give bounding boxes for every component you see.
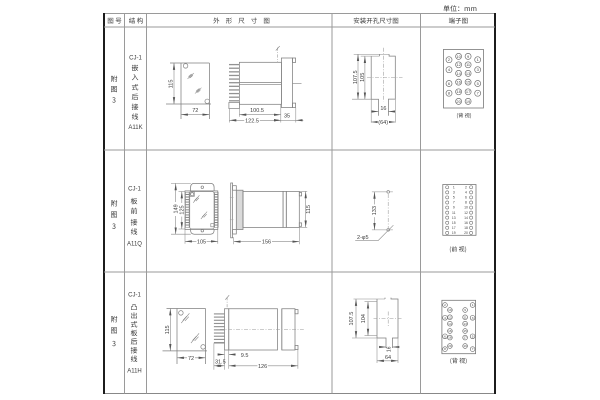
- svg-text:A11H: A11H: [127, 369, 142, 375]
- svg-text:20: 20: [464, 231, 468, 235]
- svg-text:13: 13: [466, 71, 470, 76]
- svg-text:133: 133: [372, 206, 378, 215]
- svg-text:7: 7: [453, 201, 455, 205]
- svg-text:8: 8: [448, 91, 450, 96]
- svg-text:115: 115: [165, 325, 171, 334]
- svg-text:14: 14: [464, 216, 468, 220]
- svg-text:5: 5: [472, 334, 474, 338]
- svg-text:18: 18: [448, 336, 452, 340]
- svg-text:16: 16: [456, 79, 460, 84]
- svg-text:4: 4: [444, 316, 446, 320]
- svg-text:8: 8: [465, 201, 467, 205]
- svg-text:72: 72: [188, 356, 194, 362]
- svg-text:15: 15: [466, 79, 470, 84]
- svg-text:8: 8: [444, 347, 446, 351]
- svg-text:15: 15: [463, 329, 467, 333]
- svg-text:19: 19: [466, 99, 470, 104]
- svg-text:9: 9: [464, 308, 466, 312]
- svg-text:2: 2: [465, 186, 467, 190]
- svg-text:(64): (64): [378, 120, 388, 126]
- svg-text:13: 13: [452, 216, 456, 220]
- svg-text:105: 105: [360, 73, 366, 82]
- svg-text:3: 3: [472, 316, 474, 320]
- svg-text:2: 2: [444, 303, 446, 307]
- svg-text:CJ-1: CJ-1: [128, 187, 141, 193]
- svg-text:16: 16: [464, 221, 468, 225]
- svg-text:19: 19: [452, 231, 456, 235]
- svg-text:9: 9: [453, 206, 455, 210]
- svg-text:115: 115: [169, 80, 175, 89]
- svg-text:17: 17: [452, 226, 456, 230]
- svg-text:100.5: 100.5: [250, 108, 264, 114]
- svg-text:13: 13: [463, 322, 467, 326]
- svg-text:105: 105: [197, 239, 206, 245]
- svg-text:10: 10: [464, 206, 468, 210]
- svg-text:1: 1: [477, 57, 479, 62]
- svg-text:9.5: 9.5: [241, 353, 249, 359]
- svg-text:CJ-1: CJ-1: [128, 293, 141, 299]
- svg-text:126: 126: [258, 364, 267, 370]
- svg-text:115: 115: [306, 205, 312, 214]
- svg-text:2-φ5: 2-φ5: [357, 235, 369, 241]
- svg-text:156: 156: [262, 240, 271, 246]
- svg-text:A11Q: A11Q: [127, 242, 142, 248]
- svg-text:72: 72: [192, 108, 198, 114]
- svg-text:12: 12: [448, 315, 452, 319]
- svg-text:122.5: 122.5: [245, 118, 259, 124]
- svg-text:5: 5: [477, 81, 479, 86]
- svg-text:12: 12: [464, 211, 468, 215]
- svg-text:125: 125: [179, 205, 185, 214]
- svg-text:11: 11: [452, 211, 456, 215]
- svg-text:7: 7: [477, 91, 479, 96]
- svg-text:149: 149: [173, 204, 179, 213]
- svg-text:17: 17: [466, 89, 470, 94]
- svg-text:14: 14: [448, 322, 452, 326]
- svg-text:5: 5: [453, 196, 455, 200]
- svg-text:9: 9: [467, 54, 469, 59]
- svg-text:31.5: 31.5: [215, 359, 226, 365]
- svg-text:11: 11: [466, 62, 470, 67]
- svg-text:15: 15: [452, 221, 456, 225]
- svg-text:CJ-1: CJ-1: [129, 55, 142, 61]
- svg-text:64: 64: [385, 355, 391, 361]
- svg-text:3: 3: [477, 67, 479, 72]
- svg-text:A11K: A11K: [128, 125, 142, 131]
- svg-text:16: 16: [387, 346, 393, 352]
- svg-text:6: 6: [448, 81, 450, 86]
- svg-text:1: 1: [472, 303, 474, 307]
- svg-text:104: 104: [361, 314, 367, 323]
- svg-text:35: 35: [284, 114, 290, 120]
- svg-text:6: 6: [465, 196, 467, 200]
- svg-text:1: 1: [453, 186, 455, 190]
- svg-text:7: 7: [472, 347, 474, 351]
- svg-text:12: 12: [456, 62, 460, 67]
- svg-text:18: 18: [464, 226, 468, 230]
- svg-text:20: 20: [448, 344, 452, 348]
- svg-text:11: 11: [463, 315, 466, 319]
- svg-text:3: 3: [453, 191, 455, 195]
- svg-text:2: 2: [448, 57, 450, 62]
- svg-text:6: 6: [444, 334, 446, 338]
- svg-text:17: 17: [463, 336, 467, 340]
- svg-text:18: 18: [456, 89, 460, 94]
- svg-text:4: 4: [465, 191, 467, 195]
- svg-text:19: 19: [463, 344, 467, 348]
- svg-text:16: 16: [380, 106, 386, 112]
- svg-text:107.5: 107.5: [353, 70, 359, 84]
- svg-text:10: 10: [448, 308, 452, 312]
- svg-text:107.5: 107.5: [349, 312, 355, 326]
- svg-text:16: 16: [448, 329, 452, 333]
